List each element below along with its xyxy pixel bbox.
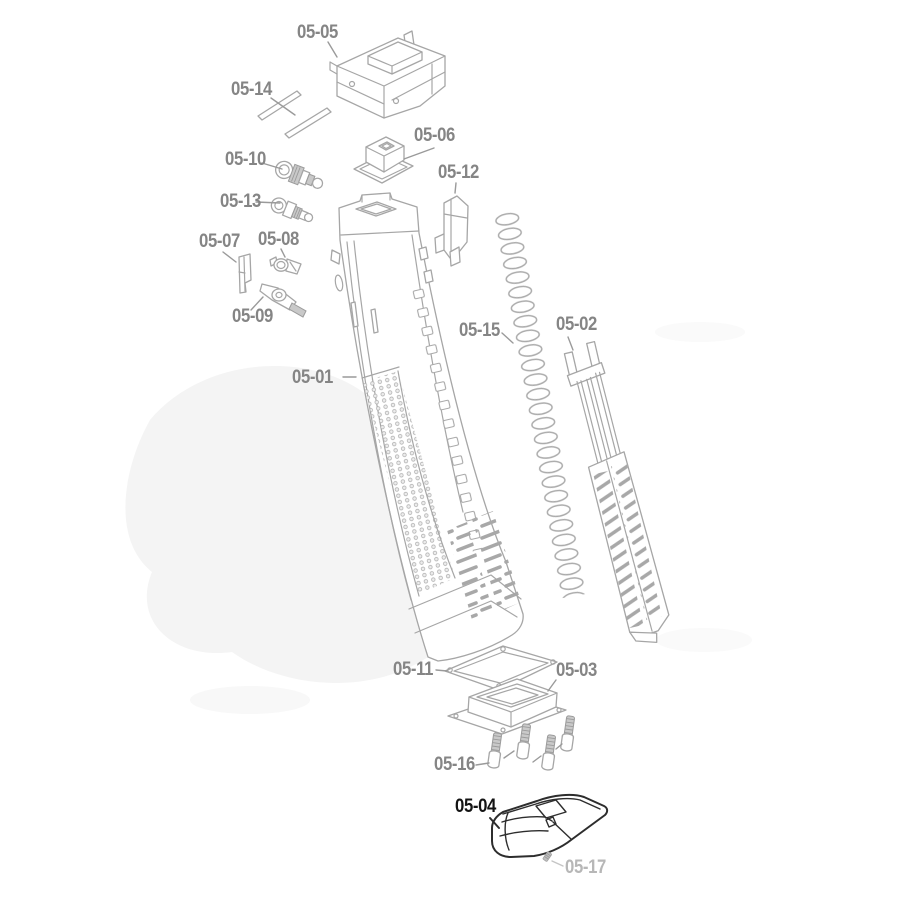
part-drawing-follower	[435, 196, 468, 266]
exploded-parts-diagram: 05-05 05-14 05-06 05-10 05-12 05-13 05-0…	[0, 0, 900, 900]
part-drawing-exhaust-valve	[273, 158, 326, 193]
part-label-05-14: 05-14	[231, 80, 272, 99]
part-drawing-valve-locker	[239, 254, 251, 293]
part-drawing-valve-base	[448, 679, 566, 734]
part-label-05-16: 05-16	[434, 755, 475, 774]
part-drawing-knocker	[270, 257, 301, 274]
part-label-05-11: 05-11	[393, 660, 433, 679]
part-label-05-15: 05-15	[459, 321, 500, 340]
part-label-05-13: 05-13	[220, 192, 261, 211]
part-label-05-07: 05-07	[199, 232, 240, 251]
part-label-05-08: 05-08	[258, 230, 299, 249]
part-drawing-spring	[493, 210, 586, 599]
part-label-05-01: 05-01	[292, 368, 333, 387]
part-drawing-inlet-valve	[269, 196, 315, 226]
part-label-05-04: 05-04	[455, 797, 496, 816]
part-drawing-top-cover	[330, 31, 445, 118]
part-label-05-03: 05-03	[556, 661, 597, 680]
part-drawing-gas-route	[354, 137, 413, 183]
part-label-05-02: 05-02	[556, 315, 597, 334]
part-label-05-06: 05-06	[414, 126, 455, 145]
part-drawing-base-pad	[492, 795, 607, 857]
part-label-05-10: 05-10	[225, 150, 266, 169]
part-label-05-12: 05-12	[438, 163, 479, 182]
part-drawing-follower-rail	[561, 339, 674, 648]
part-label-05-05: 05-05	[297, 23, 338, 42]
part-label-05-09: 05-09	[232, 307, 273, 326]
part-label-05-17: 05-17	[565, 858, 606, 877]
